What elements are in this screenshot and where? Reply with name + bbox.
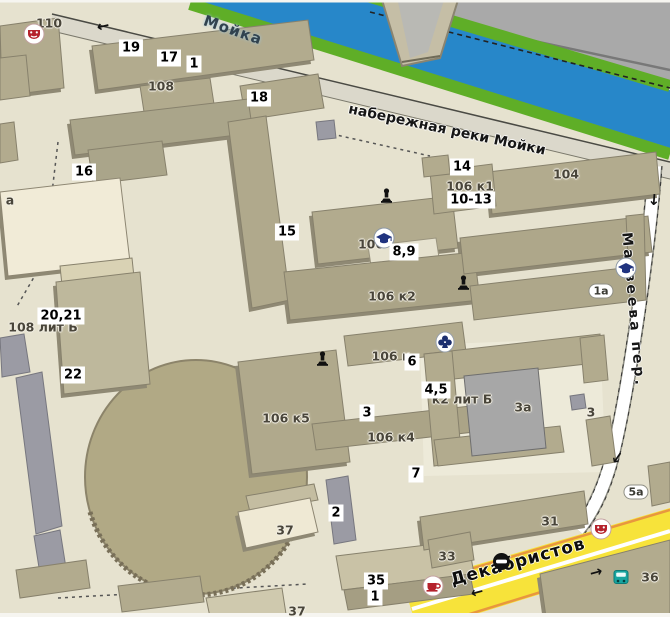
map-marker-18: 18 [247, 90, 271, 107]
label-overlay: Мойка набережная реки Мойки Матвеева пер… [0, 0, 670, 617]
building-label-3а: 3а [514, 400, 531, 415]
map-marker-8,9: 8,9 [389, 244, 418, 261]
map-canvas[interactable]: Мойка набережная реки Мойки Матвеева пер… [0, 0, 670, 617]
direction-arrow: ← [469, 582, 486, 603]
building-label-а: а [6, 193, 14, 208]
building-label-104: 104 [553, 167, 579, 182]
lane-label: Матвеева пер. [618, 232, 648, 389]
map-marker-19: 19 [119, 40, 143, 57]
building-label-33: 33 [438, 549, 455, 564]
map-marker-14: 14 [450, 159, 474, 176]
building-label-36: 36 [641, 570, 658, 585]
map-marker-22: 22 [61, 367, 85, 384]
map-marker-6: 6 [404, 354, 419, 371]
map-marker-2: 2 [328, 505, 343, 522]
direction-arrow: → [588, 562, 605, 583]
river-label: Мойка [201, 12, 265, 49]
building-label-37: 37 [276, 523, 293, 538]
address-plate-1а: 1а [588, 284, 613, 299]
building-label-106 к5: 106 к5 [262, 411, 310, 426]
address-plate-5а: 5а [623, 485, 648, 500]
street-label: Декабристов [448, 534, 587, 590]
map-marker-20,21: 20,21 [37, 308, 84, 325]
map-marker-4,5: 4,5 [421, 382, 450, 399]
building-label-108: 108 [148, 79, 174, 94]
map-marker-7: 7 [408, 466, 423, 483]
map-marker-15: 15 [275, 224, 299, 241]
building-label-3: 3 [587, 405, 596, 420]
building-label-106 к4: 106 к4 [367, 430, 415, 445]
building-label-31: 31 [541, 514, 558, 529]
map-marker-17: 17 [157, 50, 181, 67]
direction-arrow: ↓ [607, 447, 628, 469]
direction-arrow: ← [95, 16, 111, 36]
map-marker-35: 35 [364, 573, 388, 590]
map-marker-1: 1 [367, 589, 382, 606]
map-marker-1: 1 [186, 56, 201, 73]
map-marker-16: 16 [72, 164, 96, 181]
map-marker-10-13: 10-13 [447, 192, 495, 209]
building-label-37: 37 [288, 604, 305, 617]
embankment-label: набережная реки Мойки [347, 101, 547, 158]
building-label-106 к2: 106 к2 [368, 289, 416, 304]
direction-arrow: ↓ [647, 191, 661, 210]
map-marker-3: 3 [359, 405, 374, 422]
